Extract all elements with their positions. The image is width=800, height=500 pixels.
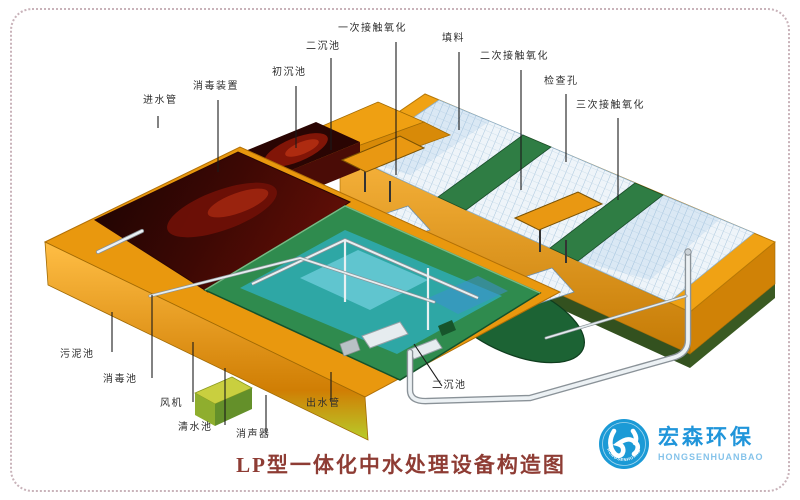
- callout-disinfection-device: 消毒装置: [193, 82, 239, 92]
- callout-packing-media: 填料: [442, 34, 465, 44]
- diagram-title: LP型一体化中水处理设备构造图: [168, 449, 634, 479]
- callout-disinfection-tank: 消毒池: [103, 375, 138, 385]
- callout-first-contact-oxidation: 一次接触氧化: [338, 24, 407, 34]
- company-logo: HONGSENHUANBAO 宏森环保 HONGSENHUANBAO: [598, 418, 764, 470]
- logo-company-name-en: HONGSENHUANBAO: [658, 452, 764, 462]
- callout-silencer: 消声器: [236, 430, 271, 440]
- callout-inlet-pipe: 进水管: [143, 96, 178, 106]
- callout-blower: 风机: [160, 399, 183, 409]
- callout-inspection-hole: 检查孔: [544, 77, 579, 87]
- callout-sludge-tank: 污泥池: [60, 350, 95, 360]
- callout-secondary-sedimentation-tank-top: 二沉池: [306, 42, 341, 52]
- diagram-stage: 进水管 消毒装置 初沉池 二沉池 一次接触氧化 填料 二次接触氧化 检查孔 三次…: [0, 0, 800, 500]
- logo-mark-icon: HONGSENHUANBAO: [598, 418, 650, 470]
- callout-second-contact-oxidation: 二次接触氧化: [480, 52, 549, 62]
- callout-clean-water-tank: 清水池: [178, 423, 213, 433]
- callout-primary-sedimentation-tank: 初沉池: [272, 68, 307, 78]
- logo-company-name: 宏森环保: [658, 426, 764, 449]
- callout-outlet-pipe: 出水管: [306, 399, 341, 409]
- callout-secondary-sedimentation-tank: 二沉池: [432, 381, 467, 391]
- callout-third-contact-oxidation: 三次接触氧化: [576, 101, 645, 111]
